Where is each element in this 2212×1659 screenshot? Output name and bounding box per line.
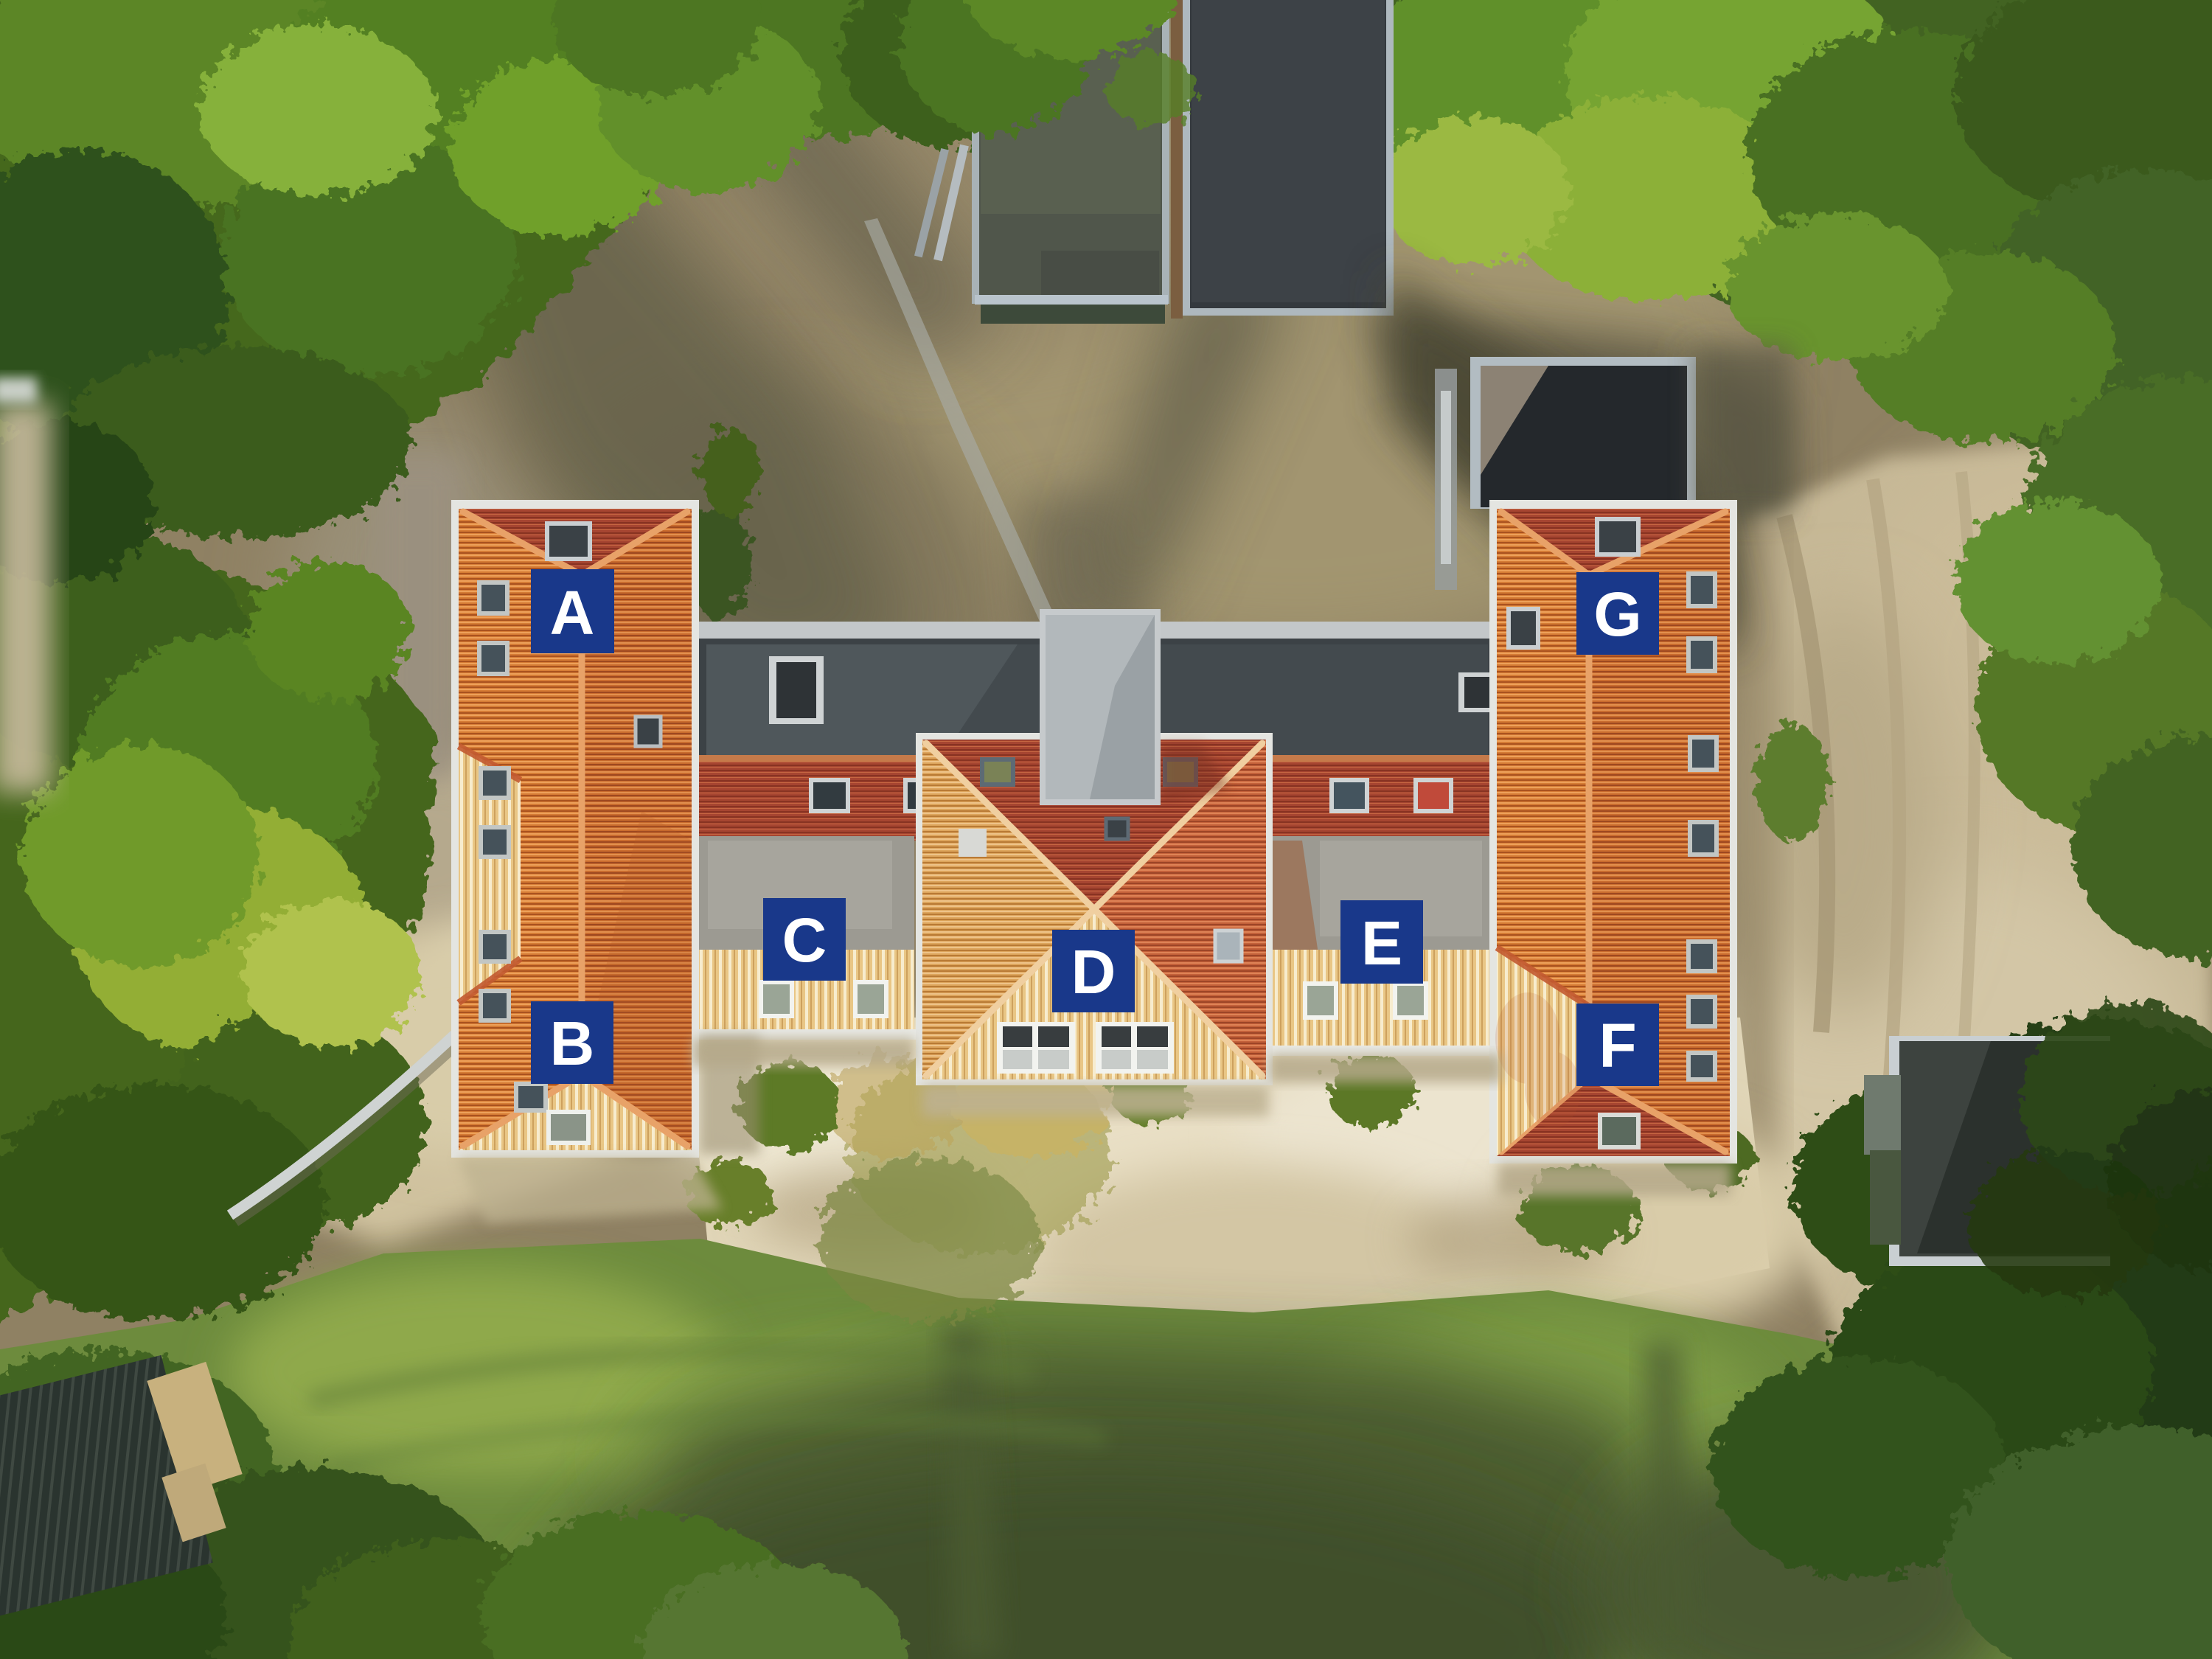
svg-text:C: C: [782, 905, 827, 975]
svg-text:B: B: [550, 1009, 595, 1078]
svg-text:F: F: [1599, 1011, 1636, 1080]
svg-text:A: A: [550, 578, 595, 647]
svg-text:G: G: [1593, 580, 1641, 649]
svg-text:D: D: [1071, 937, 1116, 1006]
svg-text:E: E: [1361, 908, 1402, 978]
